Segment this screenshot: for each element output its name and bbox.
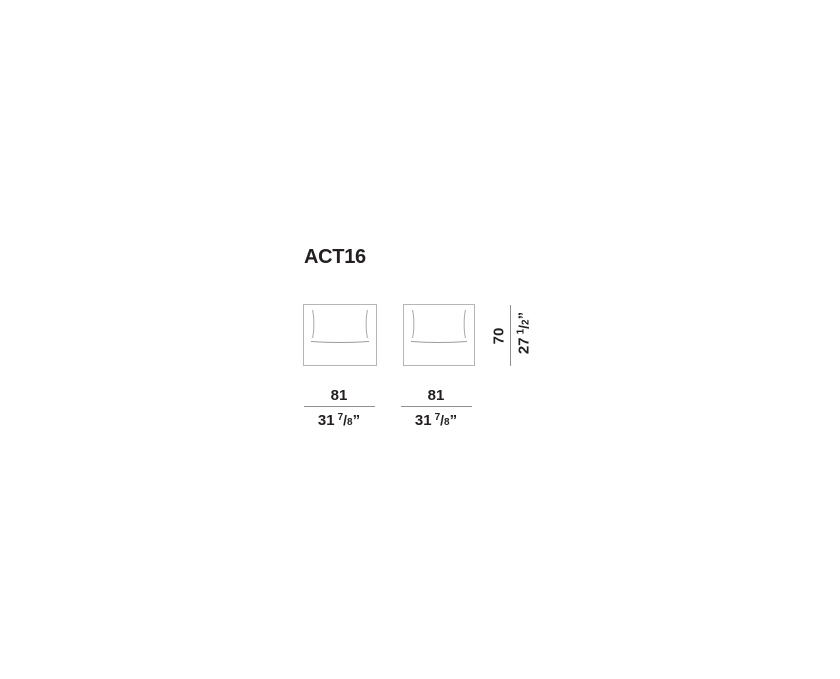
fraction-numerator: 1	[516, 329, 527, 335]
width-cm-value: 81	[294, 387, 384, 404]
module-1-drawing	[303, 304, 377, 366]
width-inch-value: 317/8”	[294, 409, 384, 431]
width-dimension-line	[401, 406, 472, 407]
backrest-cushion-left-line	[413, 310, 414, 338]
module-outline	[404, 305, 475, 366]
inch-whole: 31	[415, 412, 432, 429]
fraction-denominator: 2	[521, 319, 532, 325]
backrest-cushion-right-line	[464, 310, 465, 338]
width-cm-value: 81	[391, 387, 481, 404]
seat-line	[411, 342, 467, 343]
seat-line	[311, 342, 369, 343]
height-cm-value: 70	[491, 328, 508, 345]
width-dimension-line	[304, 406, 375, 407]
page: ACT16 81 317/8” 81 317/8” 70 271/2”	[0, 0, 840, 679]
inch-whole: 31	[318, 412, 335, 429]
inch-unit-mark: ”	[353, 412, 361, 429]
product-title: ACT16	[304, 245, 366, 269]
fraction-slash: /	[516, 325, 532, 329]
inch-unit-mark: ”	[516, 312, 533, 320]
inch-unit-mark: ”	[450, 412, 458, 429]
width-inch-value: 317/8”	[391, 409, 481, 431]
backrest-cushion-left-line	[313, 310, 314, 338]
backrest-cushion-right-line	[366, 310, 367, 338]
module-outline	[304, 305, 377, 366]
inch-whole: 27	[516, 337, 533, 354]
module-2-drawing	[403, 304, 475, 366]
height-dimension-line	[510, 305, 511, 366]
height-inch-value: 271/2”	[516, 312, 533, 354]
width-dimension-module-1: 81 317/8”	[294, 387, 384, 431]
width-dimension-module-2: 81 317/8”	[391, 387, 481, 431]
